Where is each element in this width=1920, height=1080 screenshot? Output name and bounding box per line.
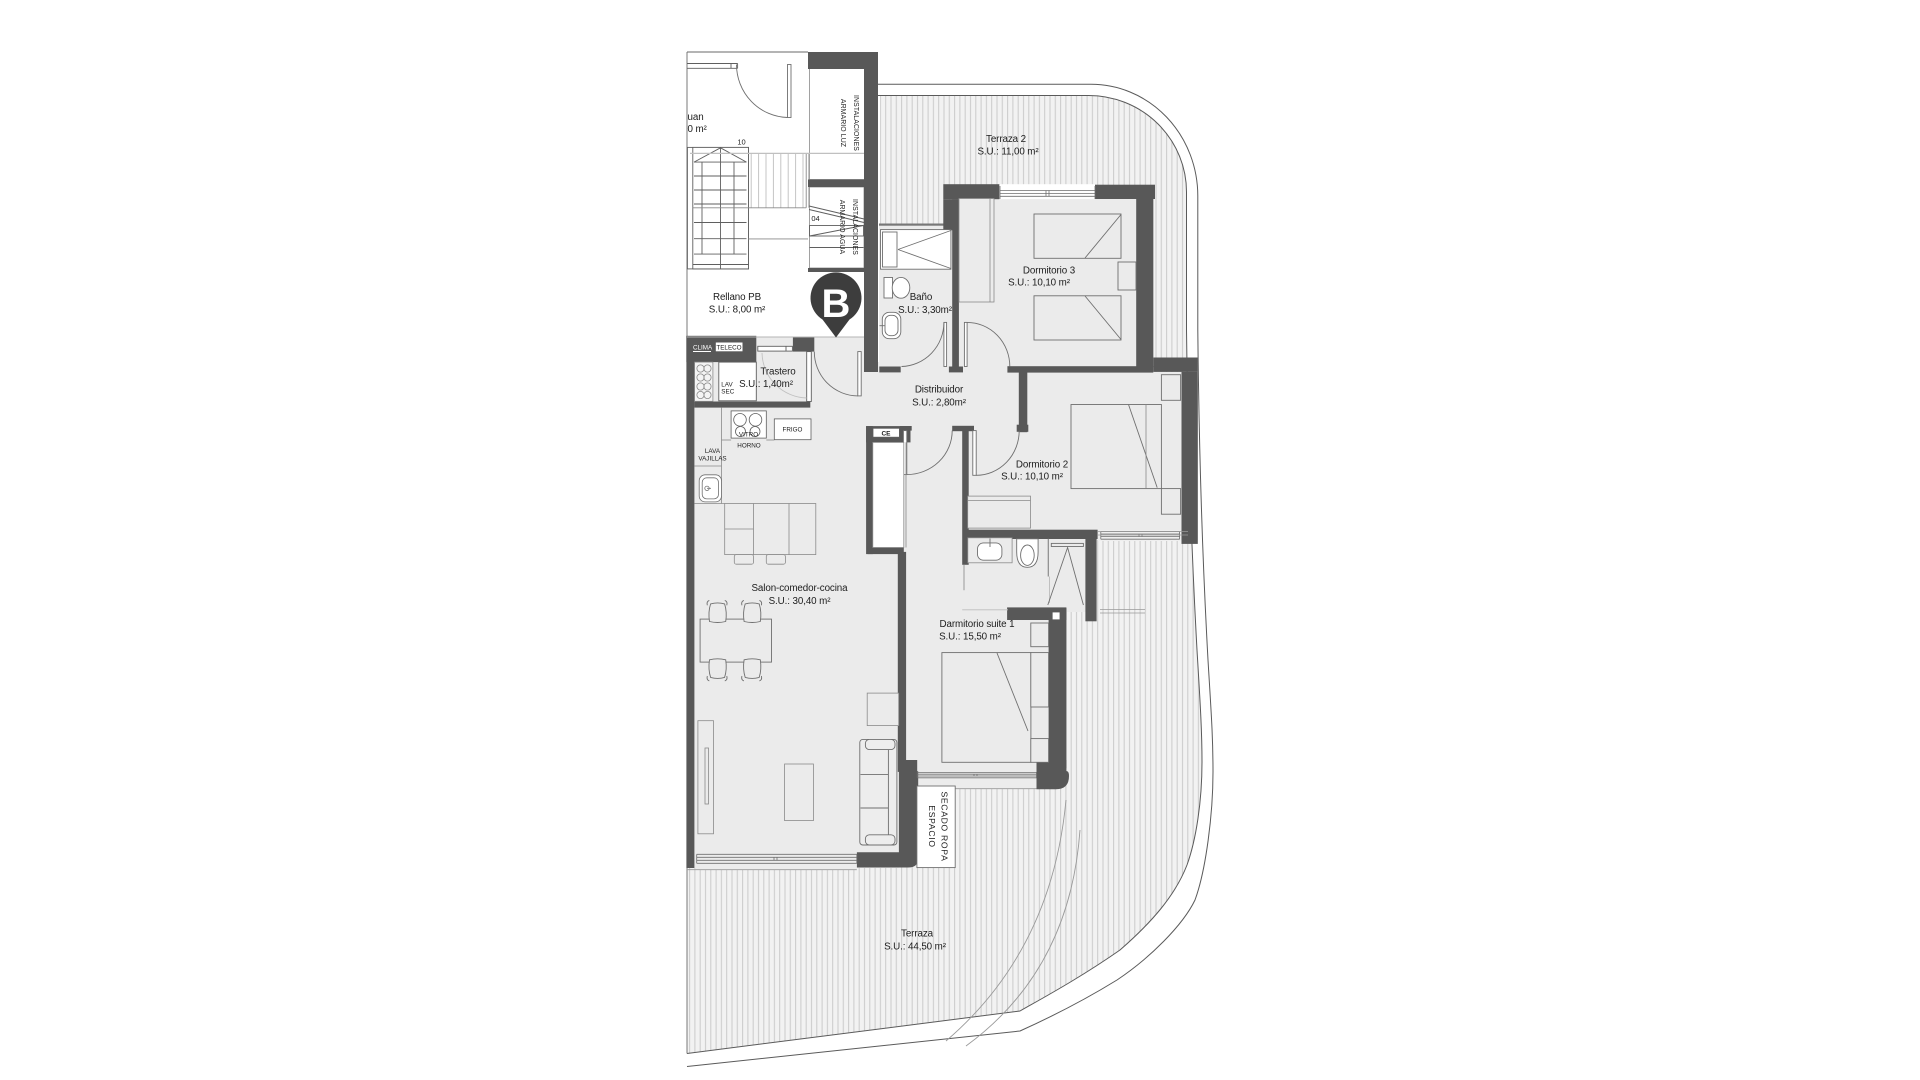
svg-text:FRIGO: FRIGO <box>783 427 803 434</box>
svg-text:INSTALACIONES: INSTALACIONES <box>851 199 858 255</box>
svg-text:HORNO: HORNO <box>737 443 761 450</box>
svg-text:Dormitorio 3: Dormitorio 3 <box>1023 266 1076 277</box>
svg-text:uan: uan <box>688 112 704 123</box>
svg-text:ESPACIO: ESPACIO <box>927 805 937 847</box>
svg-text:04: 04 <box>811 214 819 223</box>
svg-text:B: B <box>822 282 851 326</box>
svg-text:S.U.: 10,10 m²: S.U.: 10,10 m² <box>1008 278 1071 289</box>
svg-text:S.U.: 3,30m²: S.U.: 3,30m² <box>898 305 953 316</box>
svg-text:Darmitorio suite 1: Darmitorio suite 1 <box>940 619 1015 630</box>
svg-text:SEC: SEC <box>721 389 734 396</box>
svg-text:0 m²: 0 m² <box>688 124 708 135</box>
svg-text:TELECO: TELECO <box>716 345 741 352</box>
svg-text:Distribuidor: Distribuidor <box>915 385 964 396</box>
svg-text:S.U.: 15,50 m²: S.U.: 15,50 m² <box>939 632 1002 643</box>
svg-text:CE: CE <box>881 431 891 438</box>
svg-text:INSTALACIONES: INSTALACIONES <box>852 95 859 151</box>
svg-text:S.U.: 30,40 m²: S.U.: 30,40 m² <box>769 596 832 607</box>
svg-text:ARMARIO LUZ: ARMARIO LUZ <box>839 99 846 147</box>
svg-text:Rellano PB: Rellano PB <box>713 292 762 303</box>
svg-text:Trastero: Trastero <box>760 367 796 378</box>
svg-text:Terraza 2: Terraza 2 <box>986 134 1026 145</box>
svg-text:SECADO ROPA: SECADO ROPA <box>940 791 950 861</box>
svg-text:LAV: LAV <box>721 382 733 389</box>
svg-text:10: 10 <box>737 138 745 147</box>
svg-text:Baño: Baño <box>910 292 933 303</box>
svg-text:Dormitorio 2: Dormitorio 2 <box>1016 460 1068 471</box>
svg-text:VAJILLAS: VAJILLAS <box>698 456 726 463</box>
svg-text:ARMARIO AGUA: ARMARIO AGUA <box>838 200 845 255</box>
svg-text:S.U.: 1,40m²: S.U.: 1,40m² <box>739 379 794 390</box>
svg-text:S.U.: 10,10 m²: S.U.: 10,10 m² <box>1001 472 1064 483</box>
svg-text:S.U.: 2,80m²: S.U.: 2,80m² <box>912 398 967 409</box>
svg-text:S.U.: 11,00 m²: S.U.: 11,00 m² <box>977 147 1039 158</box>
svg-text:LAVA: LAVA <box>705 448 721 455</box>
svg-text:Terraza: Terraza <box>901 929 934 940</box>
svg-text:CLIMA: CLIMA <box>693 345 713 352</box>
svg-text:S.U.: 44,50 m²: S.U.: 44,50 m² <box>884 942 947 953</box>
svg-text:Salon-comedor-cocina: Salon-comedor-cocina <box>751 583 848 594</box>
svg-text:S.U.: 8,00 m²: S.U.: 8,00 m² <box>709 305 766 316</box>
svg-text:VITRO: VITRO <box>739 432 758 439</box>
